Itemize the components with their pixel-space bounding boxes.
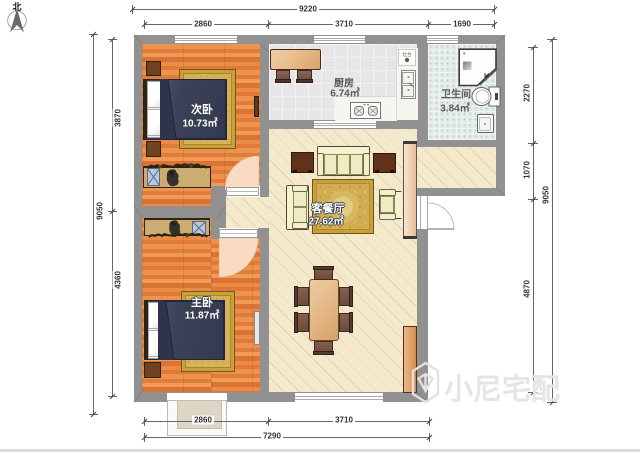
svg-text:灶台: 灶台	[403, 51, 412, 58]
